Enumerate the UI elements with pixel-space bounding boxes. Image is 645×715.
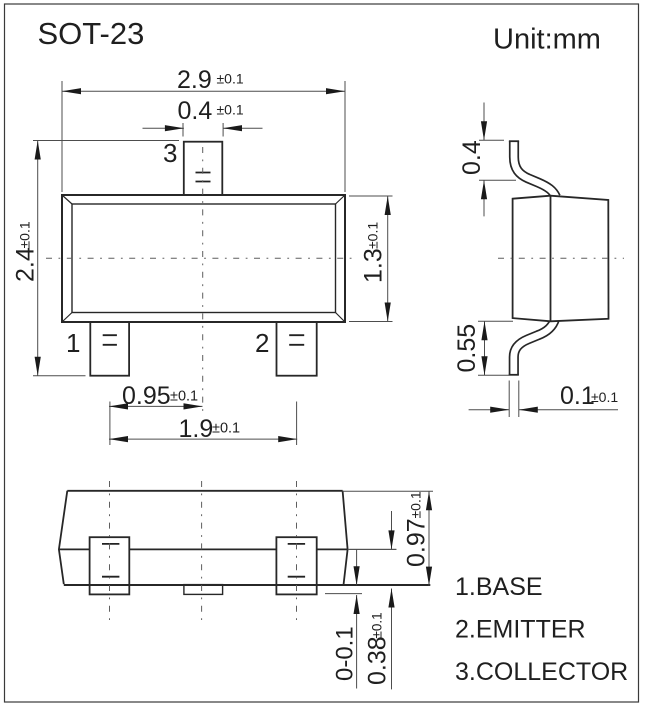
svg-text:2.4: 2.4	[12, 247, 40, 282]
svg-text:0.55: 0.55	[453, 324, 481, 373]
svg-text:±0.1: ±0.1	[217, 102, 244, 118]
svg-text:1.9: 1.9	[179, 415, 214, 443]
svg-text:2.9: 2.9	[177, 66, 212, 94]
svg-text:1.3: 1.3	[360, 248, 388, 283]
svg-text:±0.1: ±0.1	[365, 222, 381, 249]
svg-text:2.EMITTER: 2.EMITTER	[455, 616, 586, 644]
svg-text:0-0.1: 0-0.1	[332, 626, 359, 681]
svg-text:0.97: 0.97	[403, 518, 431, 567]
svg-text:3: 3	[163, 138, 177, 168]
svg-text:3.COLLECTOR: 3.COLLECTOR	[455, 658, 628, 686]
svg-text:1.BASE: 1.BASE	[455, 573, 543, 601]
svg-text:0.95: 0.95	[122, 382, 171, 410]
svg-text:±0.1: ±0.1	[217, 71, 244, 87]
svg-text:±0.1: ±0.1	[591, 389, 618, 405]
svg-text:Unit:mm: Unit:mm	[493, 23, 601, 55]
svg-text:2: 2	[255, 328, 269, 358]
svg-text:±0.1: ±0.1	[370, 612, 385, 638]
svg-text:±0.1: ±0.1	[17, 221, 33, 248]
svg-text:0.4: 0.4	[178, 97, 213, 125]
svg-text:±0.1: ±0.1	[212, 421, 240, 437]
svg-text:0.38: 0.38	[364, 636, 392, 685]
svg-text:0.1: 0.1	[560, 382, 595, 410]
svg-text:SOT-23: SOT-23	[38, 16, 145, 51]
svg-text:1: 1	[66, 328, 80, 358]
svg-text:0.4: 0.4	[458, 140, 486, 175]
svg-text:±0.1: ±0.1	[170, 389, 198, 405]
svg-text:±0.1: ±0.1	[408, 491, 424, 518]
